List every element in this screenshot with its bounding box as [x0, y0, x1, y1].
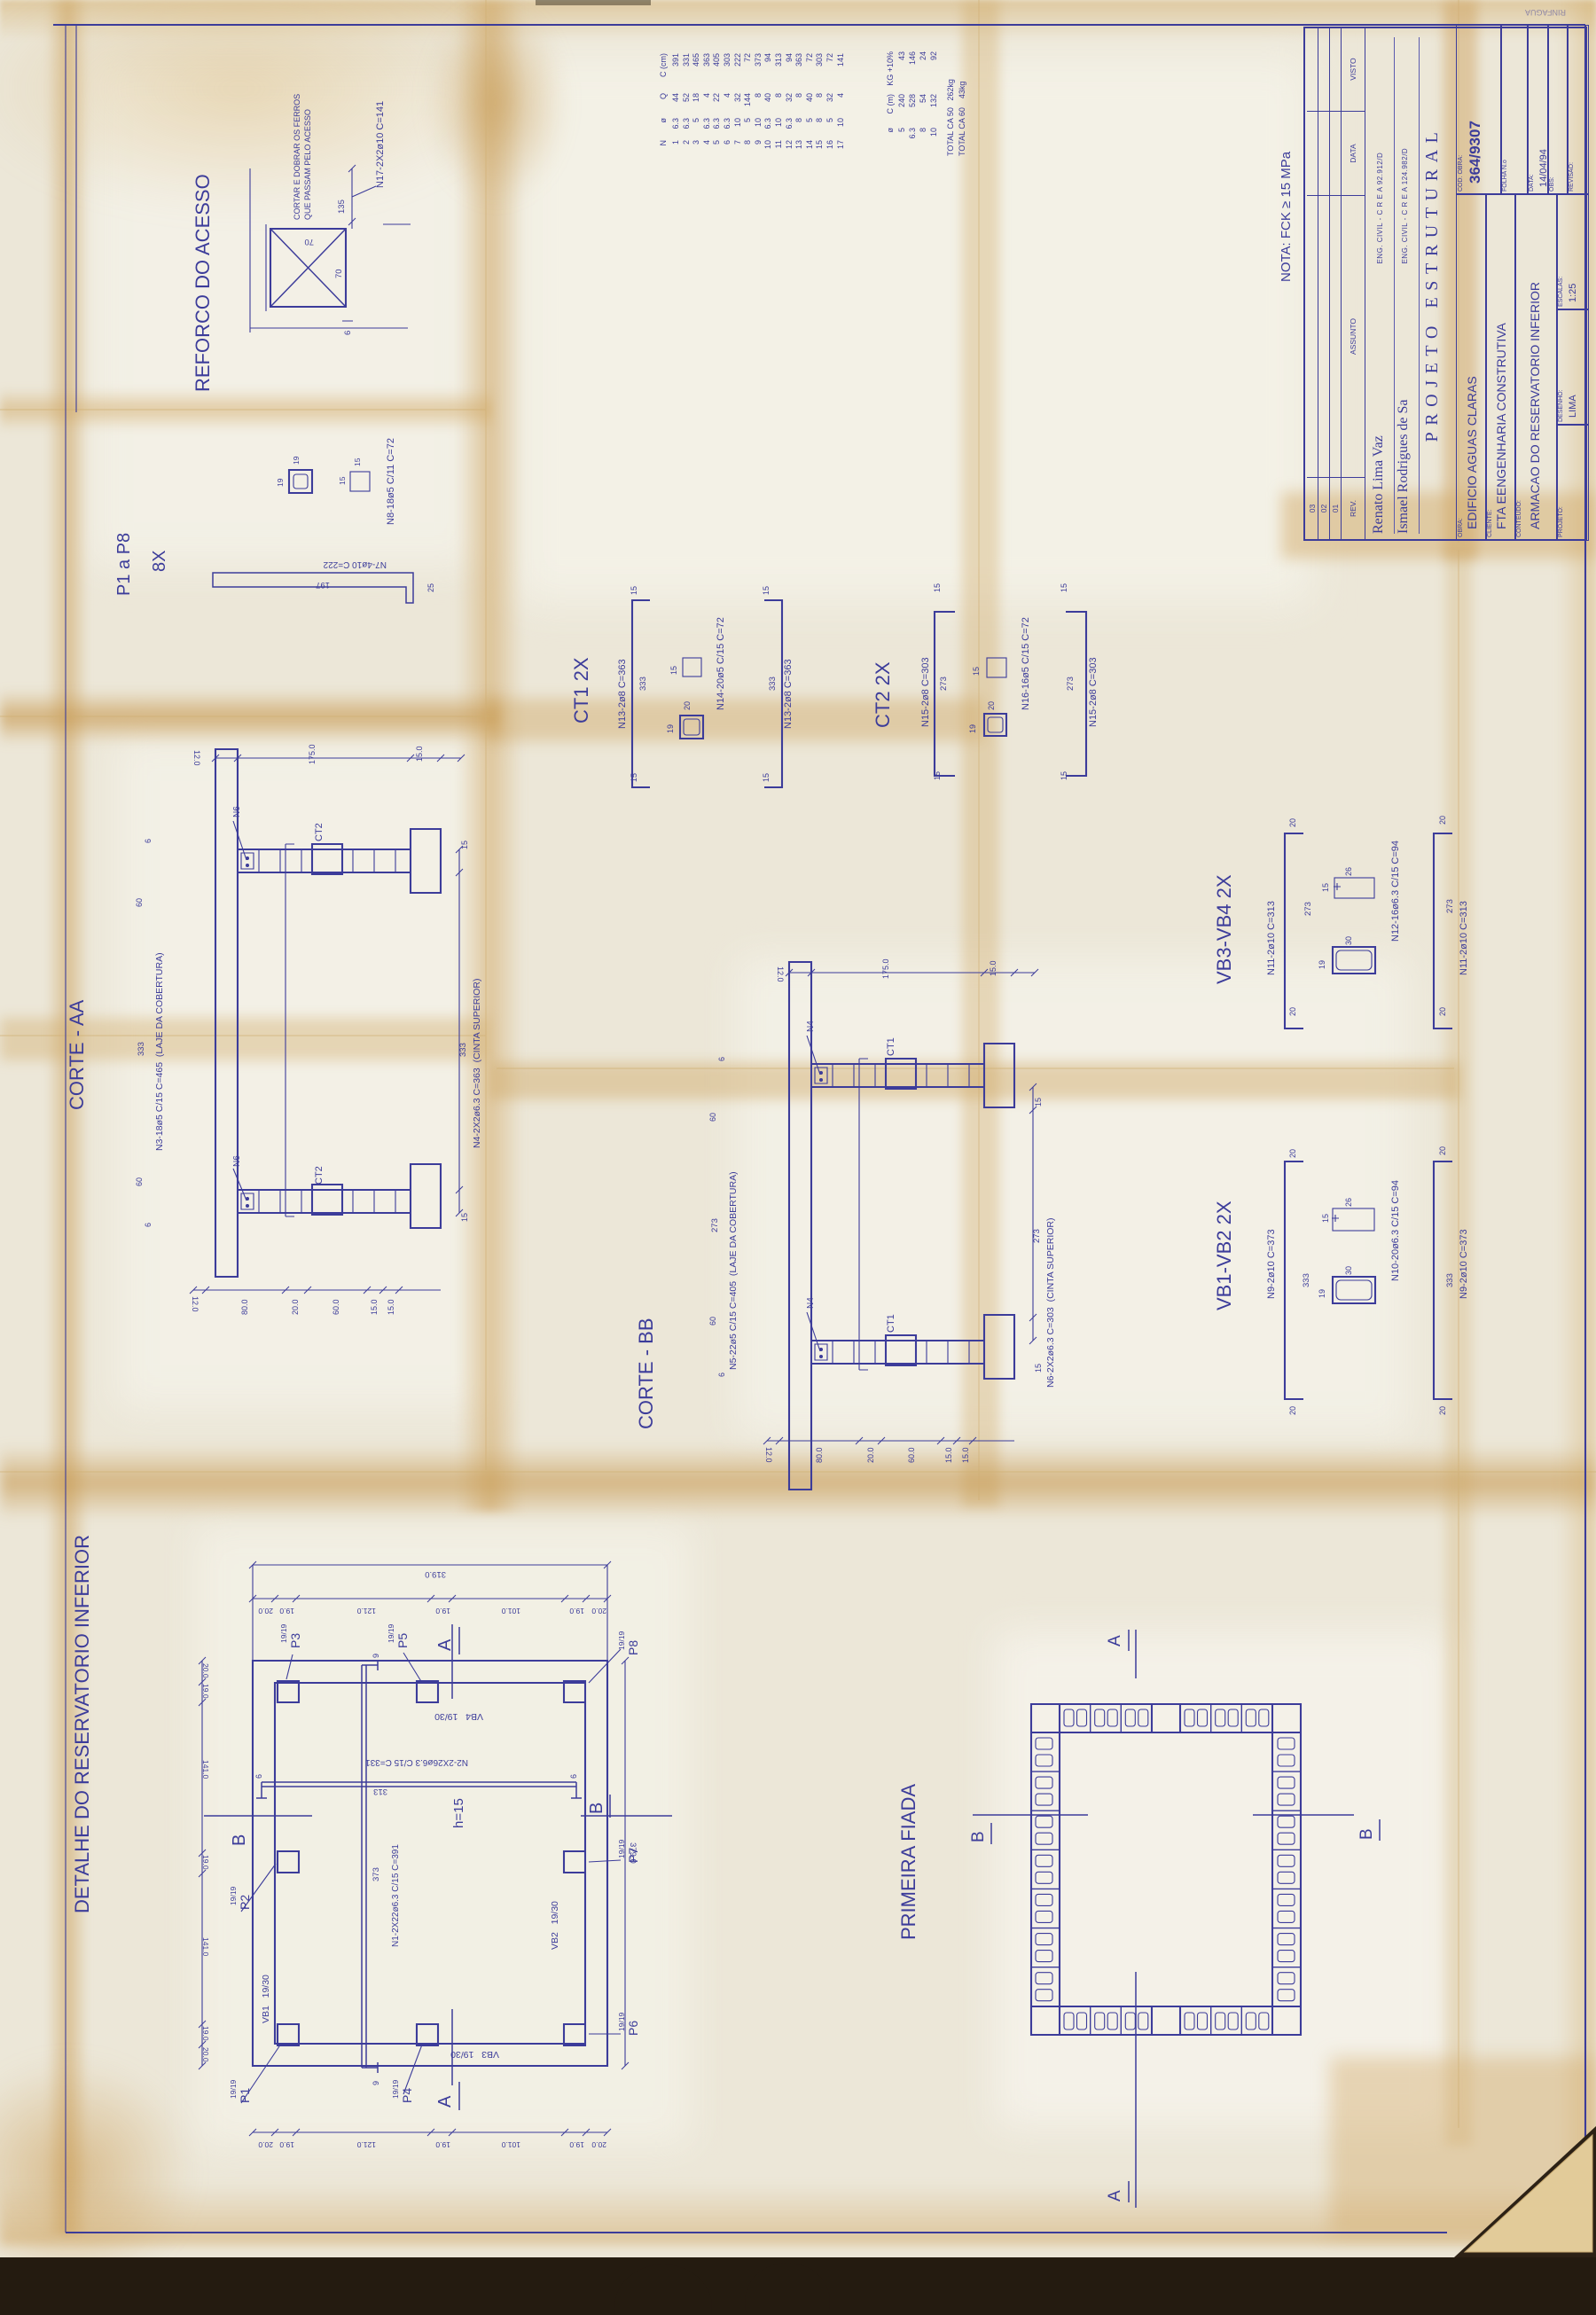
bar-table-cell: 14	[806, 140, 814, 154]
pilares-dim-15a: 15	[339, 477, 347, 485]
bb-n5-label: N5-22ø5 C/15 C=405 (LAJE DA COBERTURA)	[729, 1171, 739, 1370]
bar-table-cell: 10	[837, 118, 845, 133]
aa-n3-label: N3-18ø5 C/15 C=465 (LAJE DA COBERTURA)	[155, 952, 165, 1151]
revision-table: 03 02 01 REV. ASSUNTO DATA VISTO	[1307, 27, 1365, 539]
vb12-dim-333a: 333	[1303, 1273, 1311, 1287]
bar-table-cell: 4	[703, 140, 711, 154]
bb-dim-60a: 60	[709, 1113, 717, 1122]
aa-dim-12t: 12.0	[192, 750, 200, 766]
bar-table-cell: 222	[734, 53, 742, 87]
summary-cell: 132	[930, 94, 938, 121]
bar-table-cell: 44	[672, 93, 680, 110]
cliente-value: FTA EENGENHARIA CONSTRUTIVA	[1493, 194, 1508, 540]
ct2-dim-15a: 15	[934, 583, 942, 592]
cliente-label: CLIENTE:	[1486, 194, 1493, 540]
plan-dim-t6: 19.0	[569, 1607, 584, 1615]
aa-dim-15t: 15.0	[416, 746, 424, 762]
cliente-cell: CLIENTE: FTA EENGENHARIA CONSTRUTIVA	[1485, 193, 1516, 541]
plan-dim-t2: 19.0	[279, 1607, 294, 1615]
cod-obra-value: 364/9307	[1464, 26, 1484, 194]
plan-n1-label: N1-2X22ø6.3 C/15 C=391	[392, 1844, 401, 1947]
aa-dim-15b1: 15.0	[371, 1299, 379, 1315]
bb-dim-6a: 6	[718, 1057, 726, 1061]
bar-table-cell: 52	[683, 93, 691, 110]
bb-dim-15b2: 15.0	[962, 1447, 970, 1463]
ct2-dim-273a: 273	[940, 677, 949, 691]
ct1-dim-15sq: 15	[670, 666, 678, 675]
vb34-n11a-label: N11-2ø10 C=313	[1267, 901, 1277, 975]
bar-table-header: C (cm)	[660, 53, 668, 87]
engineer-name: Renato Lima Vaz	[1371, 268, 1387, 534]
plan-dim-l3: 141.0	[202, 1760, 210, 1779]
vb34-dim-273a: 273	[1304, 902, 1313, 916]
aa-dim-333l: 333	[137, 1042, 146, 1056]
vb12-title: VB1-VB2 2X	[1215, 1201, 1234, 1310]
engineer-registration: ENG. CIVIL - C R E A 92.912/D	[1376, 153, 1384, 264]
plan-dim-t3: 121.0	[357, 1607, 376, 1615]
plan-b-left: B	[231, 1834, 248, 1846]
bar-table-cell: 5	[713, 140, 721, 154]
reforco-note-1: CORTAR E DOBRAR OS FERROS	[293, 94, 301, 220]
summary-header: C (m)	[887, 94, 895, 121]
rev-cell	[1307, 27, 1318, 111]
vb12-n9b-label: N9-2ø10 C=373	[1459, 1229, 1469, 1299]
bar-table-cell: 4	[837, 93, 845, 110]
bar-table-cell: 6.3	[703, 118, 711, 133]
pilares-dim-25: 25	[427, 583, 435, 592]
rev-header: ASSUNTO	[1342, 195, 1365, 477]
ct1-n13a-label: N13-2ø8 C=363	[618, 659, 628, 729]
vb12-dim-20b: 20	[1289, 1406, 1297, 1415]
bar-table-cell: 363	[795, 53, 803, 87]
vb34-n12-label: N12-16ø6.3 C/15 C=94	[1391, 841, 1401, 942]
plan-p8-sec: 19/19	[618, 1631, 626, 1650]
bar-table-cell: 10	[775, 118, 783, 133]
plan-dim-313: 313	[373, 1787, 387, 1796]
aa-dim-20: 20.0	[292, 1299, 300, 1315]
bar-table-cell: 7	[734, 140, 742, 154]
plan-dim-319: 319.0	[425, 1570, 446, 1579]
bar-table-cell: 1	[672, 140, 680, 154]
bar-table-cell: 32	[826, 93, 834, 110]
ct2-dim-15d: 15	[1060, 771, 1068, 780]
plan-n2-label: N2-2X26ø6.3 C/15 C=331	[365, 1757, 468, 1766]
summary-cell: 10	[930, 128, 938, 149]
ct1-dim-15c: 15	[763, 586, 771, 595]
rev-cell	[1330, 195, 1342, 477]
bar-table-cell: 405	[713, 53, 721, 87]
plan-p2: P2	[239, 1895, 251, 1910]
engineer-registration: ENG. CIVIL - C R E A 124.982/D	[1401, 148, 1409, 264]
projeto-label: PROJETO:	[1557, 425, 1564, 540]
bb-dim-15t: 15.0	[990, 960, 997, 976]
plan-p4: P4	[401, 2088, 413, 2103]
vb12-dim-20c: 20	[1439, 1146, 1447, 1155]
summary-header: ø	[887, 128, 895, 149]
vb34-dim-30: 30	[1345, 936, 1353, 945]
ct2-title: CT2 2X	[873, 661, 893, 728]
plan-p8: P8	[627, 1640, 639, 1655]
vb34-title: VB3-VB4 2X	[1215, 874, 1234, 984]
escalas-value: 1:25	[1567, 284, 1578, 309]
bar-table-cell: 2	[683, 140, 691, 154]
rev-cell	[1318, 195, 1330, 477]
vb12-dim-20d: 20	[1439, 1406, 1447, 1415]
reforco-n17-label: N17-2X2ø10 C=141	[376, 101, 386, 188]
bar-table-cell: 313	[775, 53, 783, 87]
fiada-b-left: B	[970, 1831, 987, 1842]
summary-header: KG +10%	[887, 51, 895, 90]
plan-p6-sec: 19/19	[618, 2013, 626, 2031]
ct2-dim-15sq: 15	[973, 667, 981, 676]
ct1-dim-333a: 333	[639, 677, 648, 691]
vb34-dim-20b: 20	[1289, 1007, 1297, 1016]
bar-table-header: ø	[660, 118, 668, 133]
bar-table-cell: 5	[806, 118, 814, 133]
bb-dim-20: 20.0	[867, 1447, 875, 1463]
aa-dim-15r1: 15	[461, 841, 469, 849]
bar-table-cell: 16	[826, 140, 834, 154]
data-label: DATA:	[1528, 26, 1535, 194]
bar-table-cell: 6.3	[683, 118, 691, 133]
bar-table-cell: 5	[826, 118, 834, 133]
bar-table-cell: 6.3	[764, 118, 772, 133]
bar-table-cell: 331	[683, 53, 691, 87]
bb-dim-273l: 273	[711, 1218, 720, 1232]
desenho-value: LIMA	[1567, 395, 1578, 425]
plan-p4-sec: 19/19	[392, 2080, 400, 2099]
bar-table-cell: 8	[795, 93, 803, 110]
aa-dim-15r2: 15	[461, 1213, 469, 1222]
corte-aa-title: CORTE - AA	[67, 1000, 87, 1110]
plan-p3-sec: 19/19	[280, 1624, 288, 1643]
ct2-n15a-label: N15-2ø8 C=303	[921, 657, 931, 727]
vb12-dim-26: 26	[1345, 1198, 1353, 1207]
reforco-dim-135: 135	[338, 199, 347, 214]
rev-cell: 01	[1330, 477, 1342, 539]
bb-dim-60c: 60.0	[908, 1447, 916, 1463]
watermark: RINFAGUA	[1525, 8, 1566, 16]
plan-dim-9a: 9	[372, 1654, 380, 1658]
obra-label: OBRA:	[1457, 194, 1464, 540]
pilares-count: 8X	[151, 551, 168, 572]
conteudo-cell: CONTEUDO: ARMACAO DO RESERVATORIO INFERI…	[1514, 193, 1558, 541]
bb-n6-label: N6-2X2ø6.3 C=303 (CINTA SUPERIOR)	[1046, 1218, 1056, 1388]
pilares-title: P1 a P8	[115, 533, 133, 596]
summary-cell: 146	[909, 51, 917, 90]
vb12-n9a-label: N9-2ø10 C=373	[1267, 1229, 1277, 1299]
bar-table-cell: 5	[692, 118, 700, 133]
rev-cell	[1318, 111, 1330, 195]
pilares-dim-197: 197	[316, 581, 330, 590]
rev-cell	[1330, 111, 1342, 195]
bar-table-cell: 12	[786, 140, 794, 154]
bar-table-cell: 141	[837, 53, 845, 87]
bar-table-cell: 32	[734, 93, 742, 110]
plan-dim-l7: 20.0	[202, 2047, 210, 2062]
fiada-a-top: A	[1107, 1635, 1123, 1646]
desenho-label: DESENHO:	[1557, 309, 1564, 425]
vb34-dim-20a: 20	[1289, 818, 1297, 827]
vb12-dim-30: 30	[1345, 1266, 1353, 1275]
rev-header: DATA	[1342, 111, 1365, 195]
plan-b-right: B	[588, 1803, 606, 1814]
bar-table-cell: 4	[724, 93, 731, 110]
summary-total: TOTAL CA 50 262kg	[947, 79, 955, 156]
vb34-dim-20c: 20	[1439, 816, 1447, 825]
vb12-dim-20a: 20	[1289, 1149, 1297, 1158]
plan-dim-l5: 141.0	[202, 1937, 210, 1956]
bar-table-cell: 10	[764, 140, 772, 154]
plan-dim-b7: 20.0	[591, 2141, 606, 2149]
ct1-n14-label: N14-20ø5 C/15 C=72	[716, 617, 726, 710]
bar-table-cell: 391	[672, 53, 680, 87]
bb-dim-60b: 60	[709, 1317, 717, 1326]
bar-table-cell: 10	[734, 118, 742, 133]
summary-cell: 43	[898, 51, 906, 90]
fiada-b-right: B	[1358, 1828, 1375, 1840]
plan-p3: P3	[289, 1633, 301, 1648]
bar-table-cell: 6.3	[786, 118, 794, 133]
summary-cell: 8	[919, 128, 927, 149]
bar-table-cell: 363	[703, 53, 711, 87]
plan-p5-sec: 19/19	[387, 1624, 395, 1643]
ct1-dim-20: 20	[684, 701, 692, 710]
summary-cell: 528	[909, 94, 917, 121]
bb-ct1a-label: CT1	[887, 1037, 896, 1056]
fiada-title: PRIMEIRA FIADA	[899, 1784, 919, 1940]
bb-dim-273r: 273	[1033, 1229, 1042, 1243]
vb34-dim-15: 15	[1322, 883, 1330, 892]
desenho-cell: DESENHO: LIMA	[1556, 309, 1589, 426]
rev-header: VISTO	[1342, 27, 1365, 111]
project-type-title: PROJETO ESTRUTURAL	[1422, 27, 1454, 541]
plan-vb3-label: VB3 19/30	[450, 2050, 499, 2060]
bb-dim-175: 175.0	[882, 958, 890, 979]
summary-cell: 5	[898, 128, 906, 149]
bar-table-cell: 6.3	[713, 118, 721, 133]
data-cell: DATA: 14/04/94	[1527, 25, 1549, 195]
bb-dim-12b: 12.0	[764, 1447, 772, 1463]
summary-cell: 92	[930, 51, 938, 90]
bb-n4b-label: N4	[807, 1297, 816, 1309]
aa-dim-12b: 12.0	[191, 1296, 199, 1312]
pilares-n8-label: N8-18ø5 C/11 C=72	[387, 438, 396, 525]
vb34-dim-26: 26	[1345, 867, 1353, 876]
cod-obra-label: COD. OBRA:	[1457, 26, 1464, 194]
summary-cell: 24	[919, 51, 927, 90]
aa-dim-60a: 60	[136, 898, 144, 907]
bar-table-cell: 17	[837, 140, 845, 154]
plan-dim-l2: 19.0	[202, 1684, 210, 1699]
plan-dim-b4: 19.0	[435, 2141, 450, 2149]
aa-dim-60c: 60.0	[332, 1299, 340, 1315]
bar-table-cell: 303	[724, 53, 731, 87]
detalhe-title: DETALHE DO RESERVATORIO INFERIOR	[73, 1535, 92, 1913]
bar-table-cell: 72	[806, 53, 814, 87]
title-block-grid: OBRA: EDIFICIO AGUAS CLARAS CLIENTE: FTA…	[1456, 27, 1587, 541]
rev-cell: 03	[1307, 477, 1318, 539]
blueprint-sheet: NOTA: FCK ≥ 15 MPaRINFAGUAREFORCO DO ACE…	[0, 0, 1596, 2315]
reforco-note-2: QUE PASSAM PELO ACESSO	[304, 109, 312, 220]
obra-cell: OBRA: EDIFICIO AGUAS CLARAS	[1456, 193, 1487, 541]
aa-ct2b-label: CT2	[315, 1166, 325, 1185]
bar-table-cell: 9	[755, 140, 763, 154]
bar-table-cell: 72	[826, 53, 834, 87]
ct2-n16-label: N16-16ø5 C/15 C=72	[1021, 617, 1031, 710]
ct2-dim-273b: 273	[1067, 677, 1076, 691]
plan-dim-l1: 20.0	[202, 1663, 210, 1678]
revisao-cell: REVISAO:	[1567, 25, 1589, 195]
ct2-dim-19: 19	[969, 724, 977, 733]
plan-dim-t7: 20.0	[591, 1607, 606, 1615]
bar-table-cell: 373	[755, 53, 763, 87]
bb-ct1b-label: CT1	[887, 1314, 896, 1333]
bar-table-cell: 8	[816, 118, 824, 133]
fiada-a-bottom: A	[1107, 2190, 1123, 2202]
aa-dim-80: 80.0	[241, 1299, 249, 1315]
plan-h15: h=15	[452, 1798, 465, 1828]
vb12-dim-333b: 333	[1446, 1273, 1455, 1287]
plan-p5: P5	[396, 1633, 409, 1648]
vb34-dim-19: 19	[1318, 960, 1326, 969]
ct1-title: CT1 2X	[572, 657, 591, 723]
bb-dim-80: 80.0	[816, 1447, 824, 1463]
pilares-n7-label: N7-4ø10 C=222	[324, 559, 387, 568]
bar-table-cell: 11	[775, 140, 783, 154]
vb34-dim-273b: 273	[1446, 899, 1455, 913]
summary-cell: 54	[919, 94, 927, 121]
bar-table-cell: 8	[744, 140, 752, 154]
rev-header: REV.	[1342, 477, 1365, 539]
bb-dim-15r1: 15	[1035, 1098, 1043, 1107]
ct1-dim-333b: 333	[769, 677, 778, 691]
bar-table-cell: 4	[703, 93, 711, 110]
summary-cell: 240	[898, 94, 906, 121]
bar-table-cell: 94	[764, 53, 772, 87]
reforco-dim-70b: 70	[335, 269, 344, 278]
bb-dim-15r2: 15	[1035, 1364, 1043, 1373]
plan-p2-sec: 19/19	[230, 1887, 238, 1905]
aa-n6b-label: N6	[233, 1155, 242, 1167]
conteudo-value: ARMACAO DO RESERVATORIO INFERIOR	[1522, 194, 1542, 540]
aa-dim-60b: 60	[136, 1177, 144, 1186]
plan-dim-9b: 9	[372, 2081, 380, 2085]
plan-dim-379: 379.0	[629, 1842, 638, 1864]
engineer-row: Ismael Rodrigues de Sa ENG. CIVIL - C R …	[1396, 37, 1420, 534]
bar-table-cell: 6	[724, 140, 731, 154]
bar-table-cell: 465	[692, 53, 700, 87]
ct1-dim-15a: 15	[630, 586, 638, 595]
plan-dim-l4: 19.0	[202, 1855, 210, 1870]
revisao-label: REVISAO:	[1568, 26, 1575, 194]
bar-table-cell: 22	[713, 93, 721, 110]
reforco-dim-70a: 70	[304, 238, 314, 246]
pilares-dim-15b: 15	[354, 458, 362, 466]
vb12-dim-19: 19	[1318, 1289, 1326, 1298]
bar-table-cell: 8	[816, 93, 824, 110]
plan-a-bottom: A	[436, 2096, 454, 2108]
plan-dim-6a: 6	[255, 1774, 263, 1779]
ct2-dim-20: 20	[988, 701, 996, 710]
rev-cell	[1318, 27, 1330, 111]
ct2-dim-15c: 15	[1060, 583, 1068, 592]
plan-dim-l6: 19.0	[202, 2026, 210, 2041]
folha-label: FOLHA N.o	[1501, 26, 1508, 194]
plan-dim-373: 373	[372, 1867, 381, 1881]
bb-dim-15b1: 15.0	[945, 1447, 953, 1463]
bar-table-cell: 8	[775, 93, 783, 110]
projeto-cell: PROJETO:	[1556, 424, 1589, 541]
bar-table-cell: 94	[786, 53, 794, 87]
plan-dim-6b: 6	[570, 1774, 578, 1779]
bar-table-cell: 40	[764, 93, 772, 110]
aa-dim-15b2: 15.0	[387, 1299, 395, 1315]
conteudo-label: CONTEUDO:	[1515, 194, 1522, 540]
plan-vb4-label: VB4 19/30	[434, 1712, 483, 1722]
engineer-name: Ismael Rodrigues de Sa	[1396, 268, 1412, 534]
cod-obra-cell: COD. OBRA: 364/9307	[1456, 25, 1502, 195]
bar-table-cell: 32	[786, 93, 794, 110]
bar-table-header: Q	[660, 93, 668, 110]
plan-dim-t1: 20.0	[258, 1607, 273, 1615]
bar-schedule-table: NøQC (cm)16.34439126.352331351846546.343…	[658, 46, 855, 156]
corte-bb-title: CORTE - BB	[637, 1318, 656, 1429]
folha-cell: FOLHA N.o	[1500, 25, 1529, 195]
steel-summary-table: øC (m)KG +10%5240436.3528146854241013292…	[885, 44, 987, 160]
bar-table-cell: 10	[755, 118, 763, 133]
pilares-dim-19a: 19	[277, 479, 285, 487]
rev-cell	[1330, 27, 1342, 111]
plan-vb1-label: VB1 19/30	[262, 1975, 271, 2023]
aa-dim-333r: 333	[459, 1043, 468, 1057]
ct1-dim-15d: 15	[763, 773, 771, 782]
bar-table-cell: 15	[816, 140, 824, 154]
ct2-dim-15b: 15	[934, 771, 942, 780]
aa-n6a-label: N6	[233, 806, 242, 817]
vb12-dim-15: 15	[1322, 1214, 1330, 1223]
aa-n4-label: N4-2X2ø6.3 C=363 (CINTA SUPERIOR)	[473, 979, 482, 1149]
pilares-dim-19b: 19	[293, 457, 301, 465]
bb-dim-12t: 12.0	[776, 966, 784, 982]
rev-cell	[1307, 111, 1318, 195]
plan-dim-t4: 19.0	[435, 1607, 450, 1615]
bar-table-cell: 13	[795, 140, 803, 154]
aa-ct2a-label: CT2	[315, 823, 325, 841]
summary-total: TOTAL CA 60 43kg	[958, 82, 966, 156]
rev-cell	[1307, 195, 1318, 477]
reforco-title: REFORCO DO ACESSO	[193, 174, 213, 392]
ct2-n15b-label: N15-2ø8 C=303	[1089, 657, 1099, 727]
bar-table-cell: 6.3	[672, 118, 680, 133]
vb12-n10-label: N10-20ø6.3 C/15 C=94	[1391, 1180, 1401, 1281]
reforco-dim-6: 6	[344, 331, 353, 335]
ct1-n13b-label: N13-2ø8 C=363	[784, 659, 794, 729]
ct1-dim-19: 19	[667, 724, 675, 733]
bar-table-cell: 3	[692, 140, 700, 154]
bar-table-cell: 40	[806, 93, 814, 110]
aa-dim-6b: 6	[145, 1223, 153, 1227]
plan-dim-t5: 101.0	[502, 1607, 520, 1615]
plan-dim-b6: 19.0	[569, 2141, 584, 2149]
plan-dim-b1: 20.0	[258, 2141, 273, 2149]
vb34-n11b-label: N11-2ø10 C=313	[1459, 901, 1469, 975]
title-block: 03 02 01 REV. ASSUNTO DATA VISTO Renato …	[1303, 27, 1587, 541]
bar-table-cell: 303	[816, 53, 824, 87]
bb-dim-6b: 6	[718, 1373, 726, 1377]
bar-table-cell: 72	[744, 53, 752, 87]
plan-p6: P6	[627, 2021, 639, 2036]
